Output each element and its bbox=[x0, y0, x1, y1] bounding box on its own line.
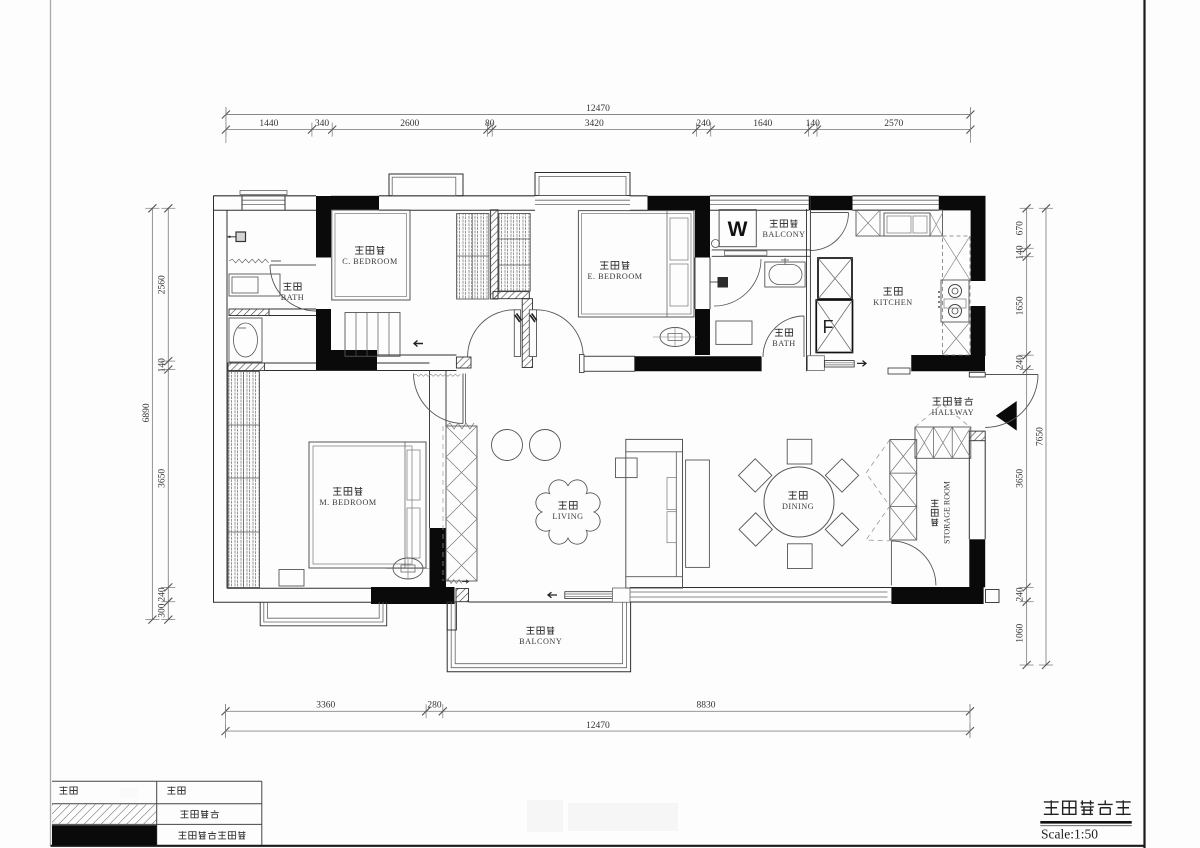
svg-text:M. BEDROOM: M. BEDROOM bbox=[319, 498, 377, 507]
svg-text:DINING: DINING bbox=[782, 502, 814, 511]
svg-text:1060: 1060 bbox=[1016, 624, 1026, 643]
svg-text:1650: 1650 bbox=[1016, 296, 1026, 315]
svg-text:3650: 3650 bbox=[1016, 469, 1026, 488]
svg-text:Scale:1:50: Scale:1:50 bbox=[1041, 827, 1098, 842]
svg-text:240: 240 bbox=[158, 587, 168, 602]
svg-text:BATH: BATH bbox=[772, 339, 795, 348]
svg-text:340: 340 bbox=[315, 119, 330, 129]
svg-text:2570: 2570 bbox=[884, 119, 903, 129]
svg-text:HALLWAY: HALLWAY bbox=[932, 408, 975, 417]
svg-text:80: 80 bbox=[485, 119, 495, 129]
svg-text:2600: 2600 bbox=[400, 119, 419, 129]
svg-text:8830: 8830 bbox=[697, 701, 716, 711]
svg-text:KITCHEN: KITCHEN bbox=[873, 298, 912, 307]
svg-text:240: 240 bbox=[1016, 355, 1026, 370]
svg-text:7650: 7650 bbox=[1036, 427, 1046, 446]
svg-text:1440: 1440 bbox=[259, 119, 278, 129]
svg-text:3420: 3420 bbox=[585, 119, 604, 129]
svg-text:670: 670 bbox=[1016, 221, 1026, 236]
svg-text:140: 140 bbox=[1016, 245, 1026, 260]
svg-text:STORAGE ROOM: STORAGE ROOM bbox=[943, 481, 952, 544]
svg-text:280: 280 bbox=[427, 701, 442, 711]
svg-text:140: 140 bbox=[806, 119, 821, 129]
svg-text:1640: 1640 bbox=[753, 119, 772, 129]
svg-text:BALCONY: BALCONY bbox=[519, 637, 562, 646]
svg-text:BATH: BATH bbox=[281, 293, 304, 302]
svg-text:3360: 3360 bbox=[316, 701, 335, 711]
svg-text:140: 140 bbox=[158, 358, 168, 373]
svg-text:240: 240 bbox=[1016, 587, 1026, 602]
svg-text:12470: 12470 bbox=[586, 721, 610, 731]
svg-text:6890: 6890 bbox=[142, 403, 152, 422]
svg-text:C. BEDROOM: C. BEDROOM bbox=[342, 257, 398, 266]
svg-text:W: W bbox=[728, 218, 748, 241]
svg-text:LIVING: LIVING bbox=[552, 512, 583, 521]
svg-text:F: F bbox=[823, 317, 834, 337]
svg-text:3650: 3650 bbox=[158, 469, 168, 488]
svg-text:300: 300 bbox=[158, 603, 168, 618]
svg-text:12470: 12470 bbox=[586, 104, 610, 114]
svg-text:E. BEDROOM: E. BEDROOM bbox=[587, 272, 642, 281]
svg-text:2560: 2560 bbox=[158, 275, 168, 294]
svg-text:BALCONY: BALCONY bbox=[762, 230, 805, 239]
svg-text:240: 240 bbox=[696, 119, 711, 129]
